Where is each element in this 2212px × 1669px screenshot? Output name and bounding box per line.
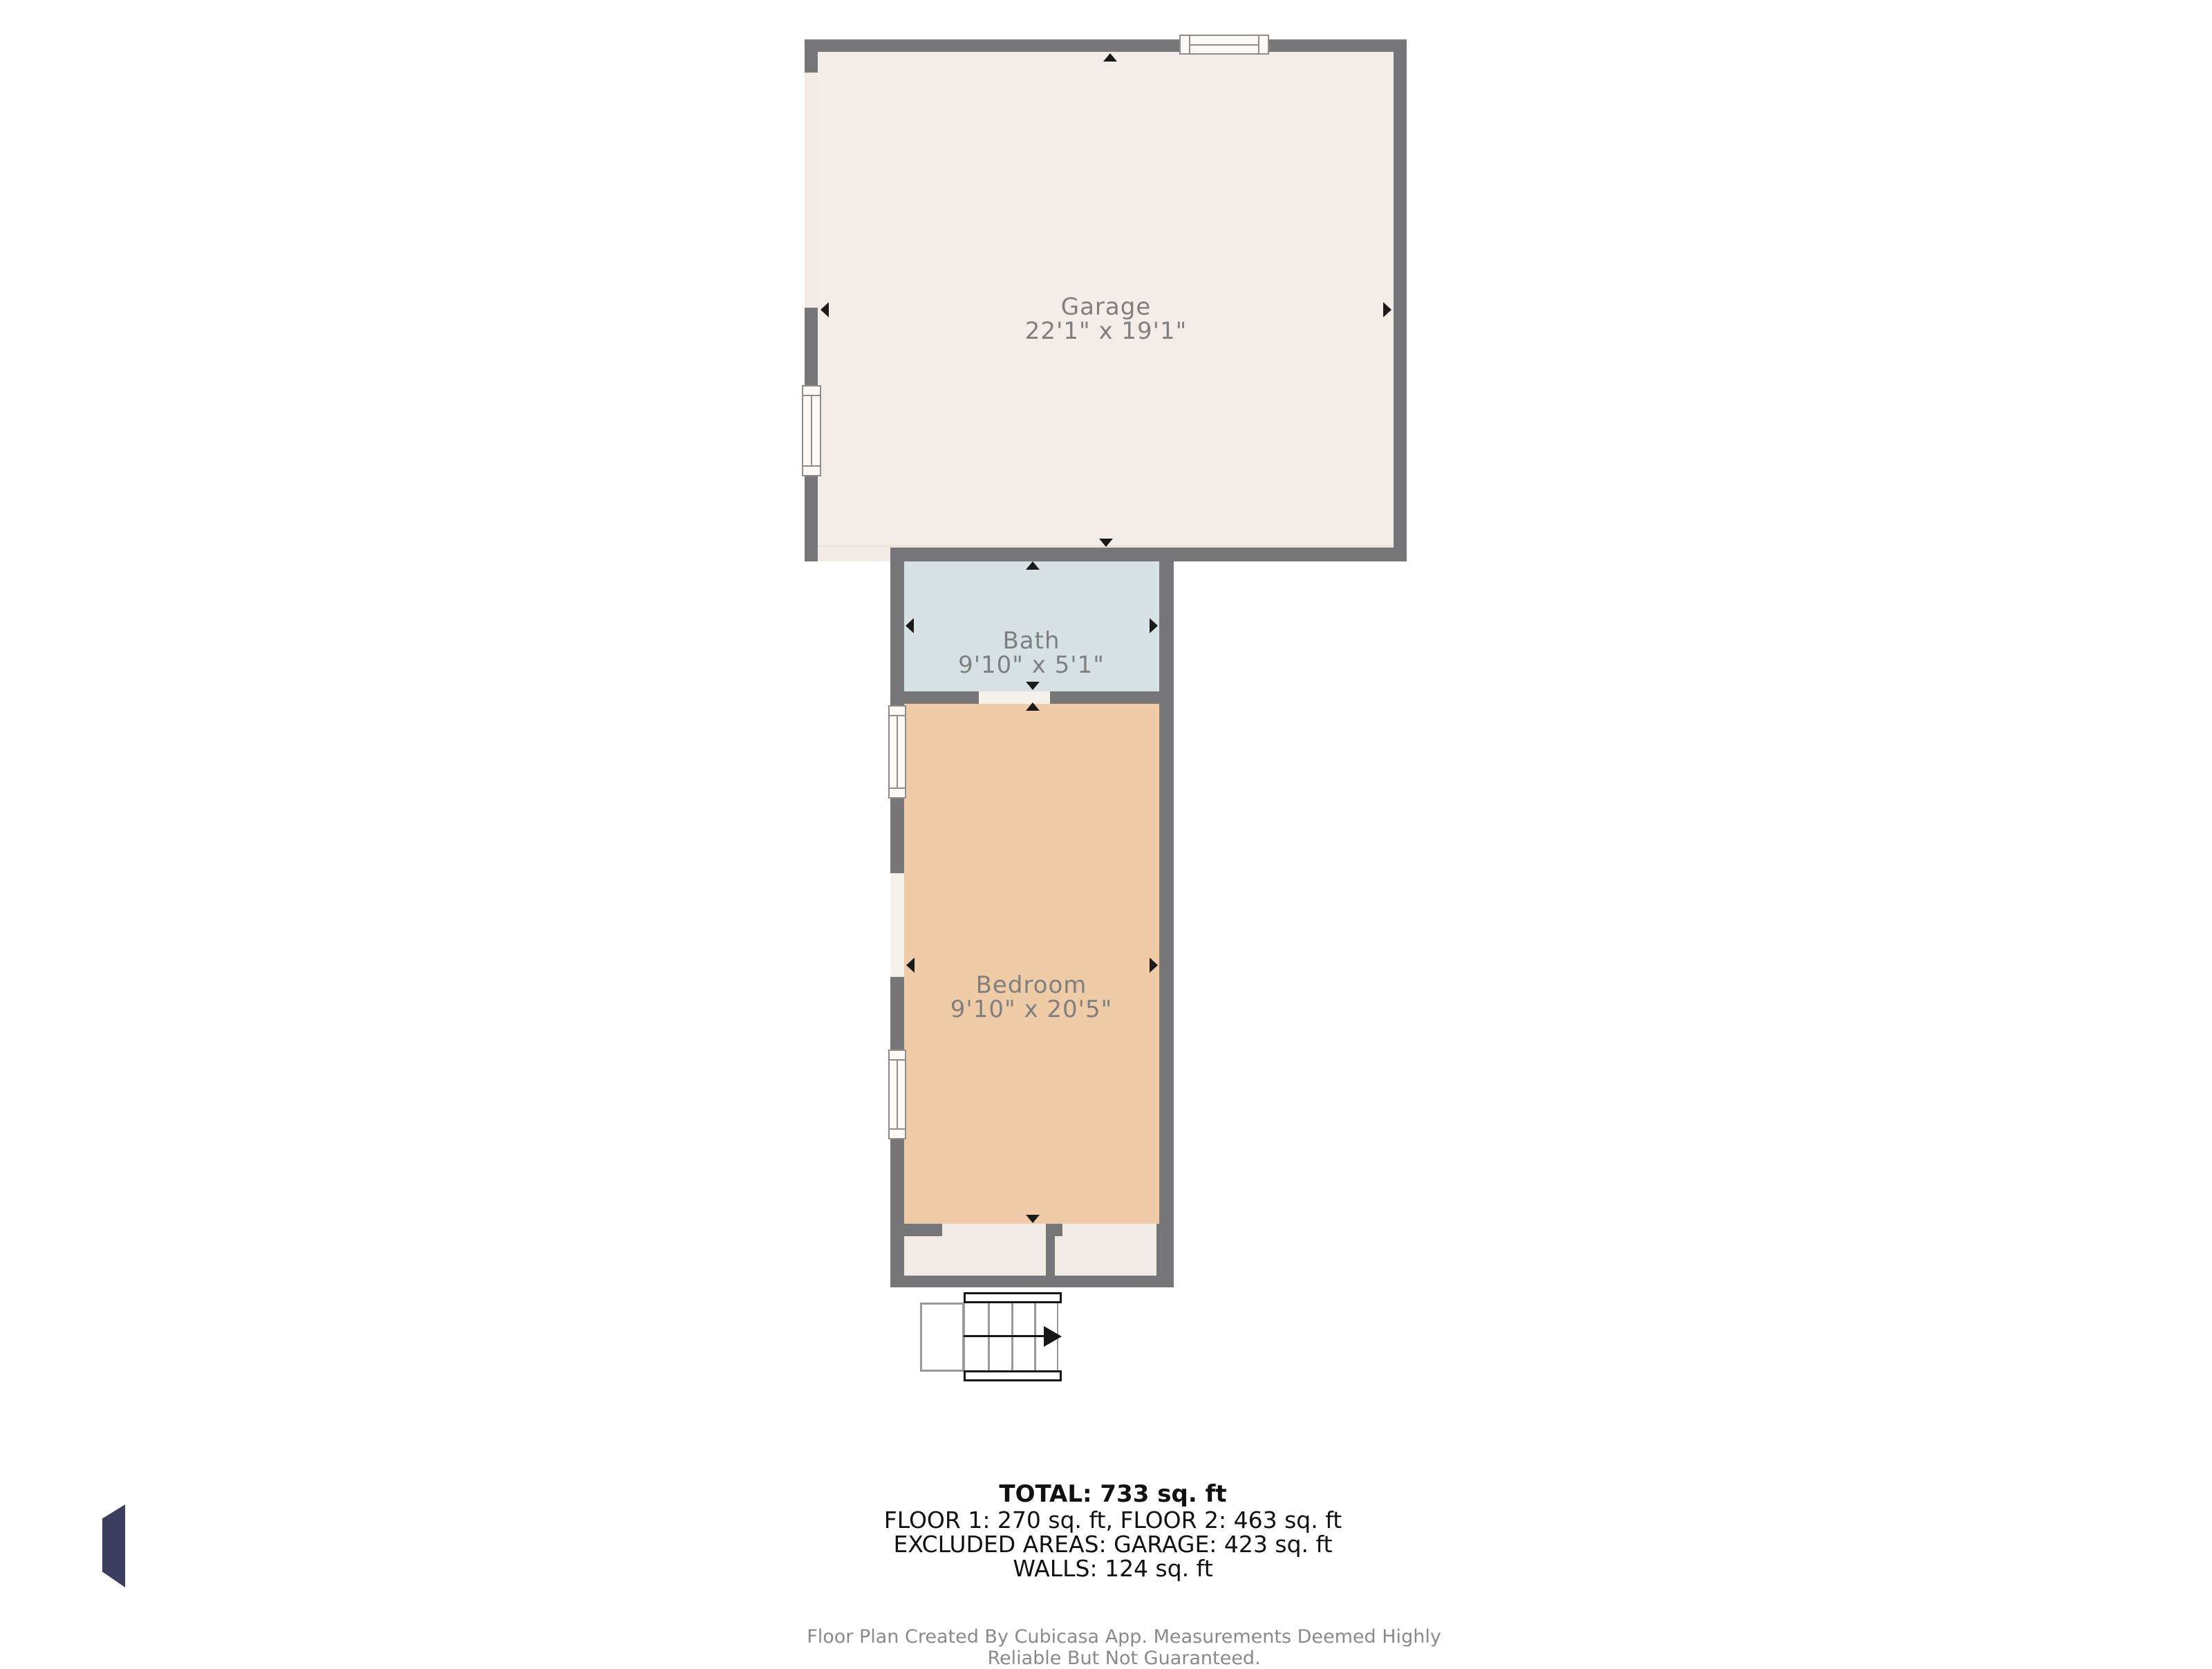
bedroom-right-door-marker-icon [1150, 958, 1158, 973]
garage-left-opening [805, 73, 818, 308]
total-area-text: TOTAL: 733 sq. ft [767, 1482, 1459, 1507]
closet-left-door-opening [942, 1224, 1046, 1236]
bedroom-floor [904, 704, 1159, 1224]
bedroom-bottom-door-marker-icon [1026, 1215, 1040, 1223]
garage-bottom-left-opening [818, 548, 890, 561]
walls-area-text: WALLS: 124 sq. ft [767, 1556, 1459, 1581]
bedroom-label: Bedroom 9'10" x 20'5" [859, 973, 1204, 1022]
stairs-top-landing-bar [964, 1292, 1062, 1303]
bedroom-left-opening [890, 873, 904, 977]
bath-top-door-marker-icon [1026, 561, 1040, 570]
garage-top-door-marker-icon [1103, 53, 1117, 62]
garage-bottom-door-marker-icon [1099, 539, 1113, 547]
bath-label: Bath 9'10" x 5'1" [859, 629, 1204, 678]
bedroom-top-door-marker-icon [1026, 702, 1040, 711]
garage-left-door-marker-icon [821, 302, 829, 317]
garage-right-door-marker-icon [1383, 302, 1391, 317]
bedroom-name: Bedroom [859, 973, 1204, 998]
bedroom-left-window-1 [888, 705, 906, 799]
closet-left-floor [904, 1236, 1046, 1276]
closet-right-door-opening [1062, 1224, 1156, 1236]
garage-label: Garage 22'1" x 19'1" [933, 295, 1279, 344]
garage-left-window [802, 385, 821, 476]
stairs-direction-arrow-icon [1044, 1326, 1062, 1347]
floor-plan: Garage 22'1" x 19'1" Bath 9'10" x 5'1" B… [0, 0, 2212, 1659]
bedroom-dims: 9'10" x 20'5" [859, 998, 1204, 1022]
stairs-landing [920, 1303, 964, 1372]
garage-dims: 22'1" x 19'1" [933, 319, 1279, 344]
floor-areas-text: FLOOR 1: 270 sq. ft, FLOOR 2: 463 sq. ft [767, 1508, 1459, 1533]
bath-bottom-door-marker-icon [1026, 682, 1040, 690]
stairs-direction-line [964, 1335, 1048, 1337]
bedroom-left-door-marker-icon [906, 958, 915, 973]
footer-disclaimer: Floor Plan Created By Cubicasa App. Meas… [778, 1626, 1470, 1669]
bath-name: Bath [859, 629, 1204, 653]
cubicasa-logo [102, 1504, 125, 1587]
closet-right-floor [1055, 1236, 1156, 1276]
bedroom-left-window-2 [888, 1050, 906, 1139]
excluded-areas-text: EXCLUDED AREAS: GARAGE: 423 sq. ft [767, 1532, 1459, 1557]
garage-top-window [1179, 35, 1269, 55]
garage-name: Garage [933, 295, 1279, 319]
stairs-bottom-landing-bar [964, 1370, 1062, 1381]
bath-dims: 9'10" x 5'1" [859, 653, 1204, 678]
